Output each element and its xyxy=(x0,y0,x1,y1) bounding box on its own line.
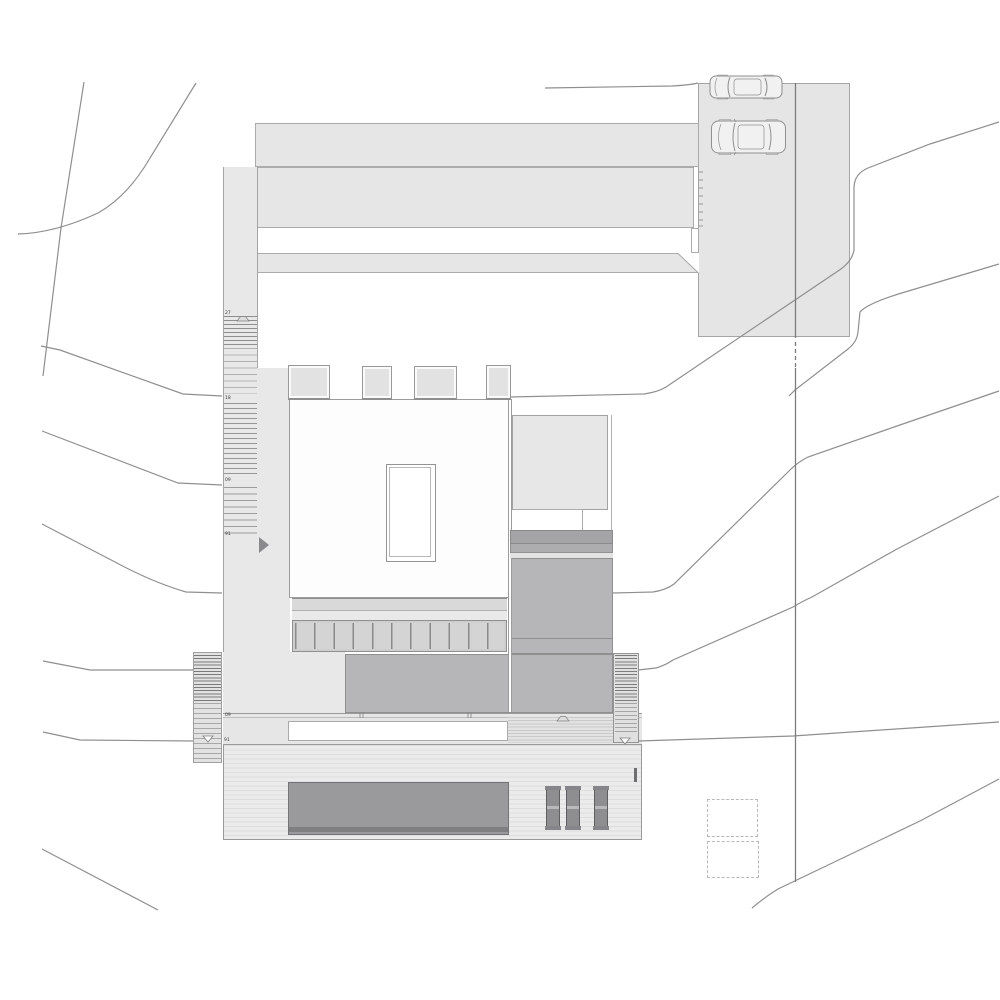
stair-label: 09 xyxy=(225,477,231,483)
site-plan-canvas: 27 18 09 91 09 91 xyxy=(0,0,1000,1000)
contour-line xyxy=(41,346,222,396)
linework-overlay: 27 18 09 91 09 91 xyxy=(0,0,1000,1000)
contour-line xyxy=(43,82,84,376)
contour-line xyxy=(43,732,193,741)
elevation-tick xyxy=(360,713,363,718)
contour-line xyxy=(18,83,196,234)
contour-line xyxy=(510,122,999,397)
elevation-tick xyxy=(468,713,471,718)
contour-line xyxy=(752,779,999,908)
car-top-view-1 xyxy=(710,75,782,99)
stair-label: 27 xyxy=(225,310,231,316)
datum-triangle-icon xyxy=(620,738,630,744)
contour-line xyxy=(613,391,999,593)
contour-line xyxy=(789,264,999,396)
benchmark-hat-icon xyxy=(237,317,249,322)
contour-line xyxy=(42,849,158,910)
contour-line xyxy=(43,661,193,670)
car-top-view-2 xyxy=(712,119,786,155)
road-edge-curve xyxy=(545,83,698,88)
wall-tick-marks xyxy=(698,172,703,226)
contour-line xyxy=(638,496,999,670)
stair-label: 91 xyxy=(224,737,230,743)
contour-line xyxy=(42,524,222,593)
entry-arrow-icon xyxy=(259,537,269,553)
datum-triangle-icon xyxy=(203,736,213,742)
contour-line xyxy=(42,431,222,485)
stair-label: 09 xyxy=(225,712,231,718)
contour-line xyxy=(638,722,999,741)
car-body xyxy=(712,121,786,153)
benchmark-hat-icon xyxy=(557,717,569,722)
stair-label: 18 xyxy=(225,395,231,401)
contour-lines xyxy=(18,82,999,910)
elevation-labels: 27 18 09 91 09 91 xyxy=(224,310,231,743)
stair-label: 91 xyxy=(225,531,231,537)
